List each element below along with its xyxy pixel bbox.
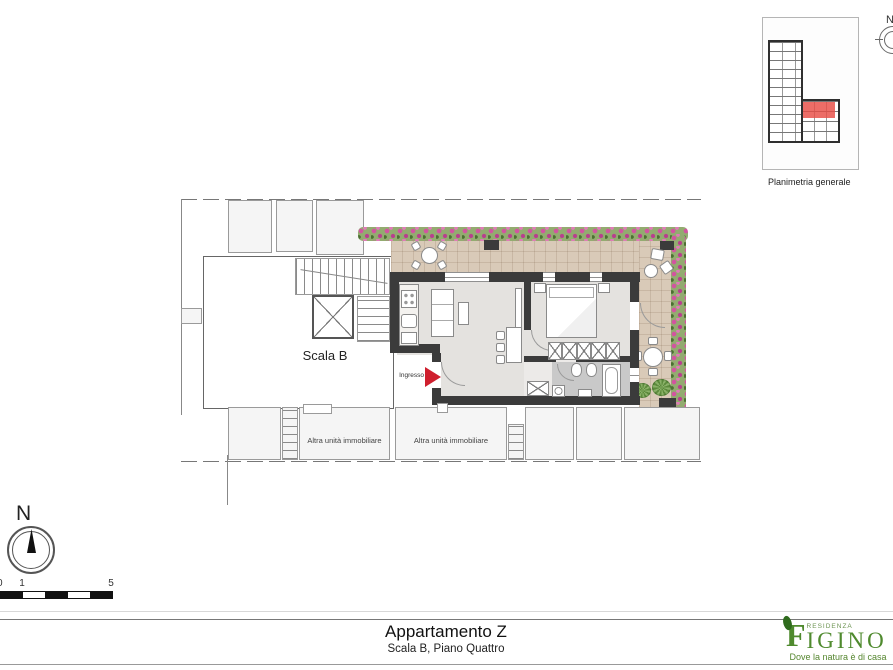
titleblock-faint-line: [0, 611, 893, 612]
neighbour-room: [276, 200, 313, 252]
staircase-right-flight: [357, 296, 390, 342]
terrace-chair: [664, 351, 672, 361]
boundary-line-left: [181, 199, 182, 415]
floor-plan-sheet: Planimetria generale N Scala B: [0, 0, 893, 670]
terrace-pillar: [484, 240, 499, 250]
terrace-chair: [648, 337, 658, 345]
scale-segment: [23, 592, 45, 598]
scale-segment: [90, 592, 112, 598]
entrance-label: Ingresso: [394, 372, 424, 379]
scale-segment: [68, 592, 90, 598]
wall-top: [390, 272, 640, 282]
other-unit-label: Altra unità immobiliare: [395, 436, 507, 445]
kitchen-cabinet: [401, 332, 417, 344]
coffee-table: [458, 302, 469, 325]
stairwell-label: Scala B: [290, 348, 360, 363]
dining-chair: [496, 355, 505, 364]
scale-label-0: 0: [0, 578, 3, 589]
kitchen-stove: [401, 290, 417, 308]
bedroom-window: [543, 272, 555, 282]
lounge-chair: [650, 248, 665, 261]
flower-border-right: [671, 234, 686, 414]
living-window: [445, 272, 489, 282]
boundary-line-left2: [227, 455, 228, 505]
other-unit-room: [299, 407, 390, 460]
keyplan-building: [768, 40, 803, 143]
neighbour-room: [228, 200, 272, 253]
other-unit-room: [228, 407, 281, 460]
north-label: N: [16, 502, 31, 526]
bathtub-basin: [605, 367, 618, 394]
wall-left: [390, 272, 399, 352]
other-unit-label: Altra unità immobiliare: [299, 436, 390, 445]
terrace-table-round: [421, 247, 438, 264]
wardrobe: [548, 342, 620, 360]
wall-right: [630, 272, 639, 405]
bath-sink: [578, 389, 592, 397]
kitchen-sink: [401, 314, 417, 328]
other-unit-room: [576, 407, 622, 460]
toilet: [571, 363, 582, 377]
keyplan-unit-highlight: [803, 102, 835, 118]
scale-label-1: 1: [19, 578, 25, 589]
terrace-pillar: [660, 241, 674, 250]
tv-bench: [515, 288, 522, 328]
wall-bottom: [432, 396, 640, 405]
elevator-shaft: [312, 295, 354, 339]
titleblock-top-line: [0, 619, 893, 620]
other-unit-balcony: [303, 404, 332, 414]
other-unit-stairs: [282, 407, 298, 460]
sheet-title: Appartamento Z: [246, 622, 646, 642]
closet: [527, 381, 549, 396]
bedroom-door-opening: [524, 330, 531, 352]
titleblock-bottom-line: [0, 664, 893, 665]
terrace-dining-table: [643, 347, 663, 367]
keyplan-caption: Planimetria generale: [768, 177, 860, 187]
other-unit-balcony: [437, 403, 448, 413]
small-balcony: [181, 308, 202, 324]
other-unit-stairs: [508, 424, 524, 460]
bed-pillow: [549, 287, 594, 298]
sofa: [431, 289, 454, 337]
scale-bar: [0, 591, 113, 599]
neighbour-room: [316, 200, 364, 255]
terrace-chair: [648, 368, 658, 376]
corner-compass-tick: [875, 39, 883, 40]
logo-row: F RESIDENZA IGINO: [786, 621, 890, 651]
boundary-line-bottom: [181, 461, 701, 462]
wardrobe-cell: [562, 342, 576, 360]
bathroom-window: [630, 368, 639, 382]
wardrobe-cell: [548, 342, 562, 360]
wardrobe-cell: [591, 342, 605, 360]
logo-initial: F: [786, 621, 806, 649]
logo-col: RESIDENZA IGINO: [807, 621, 887, 651]
bidet: [586, 363, 597, 377]
entrance-arrow-icon: [425, 367, 441, 387]
wardrobe-cell: [577, 342, 591, 360]
sheet-subtitle: Scala B, Piano Quattro: [246, 643, 646, 655]
scale-segment: [1, 592, 23, 598]
bathtub: [602, 364, 621, 397]
logo-tagline: Dove la natura è di casa: [786, 652, 890, 662]
bedroom-window: [590, 272, 602, 282]
flower-border-top: [358, 227, 688, 241]
palm-plant: [652, 379, 671, 396]
nightstand: [534, 283, 546, 293]
dining-chair: [496, 331, 505, 340]
brand-logo: F RESIDENZA IGINO Dove la natura è di ca…: [786, 621, 890, 663]
other-unit-room: [525, 407, 574, 460]
dining-chair: [496, 343, 505, 352]
terrace-pillar: [659, 398, 676, 407]
scale-segment: [45, 592, 67, 598]
scale-label-5: 5: [108, 578, 114, 589]
nightstand: [598, 283, 610, 293]
corner-north-label: N: [886, 14, 893, 26]
dining-table: [506, 327, 522, 363]
other-unit-room: [395, 407, 507, 460]
washing-machine: [552, 385, 565, 397]
wardrobe-cell: [606, 342, 620, 360]
logo-rest: IGINO: [807, 630, 887, 651]
lounge-side-table: [644, 264, 658, 278]
other-unit-room: [624, 407, 700, 460]
terrace-door-opening: [630, 302, 639, 330]
